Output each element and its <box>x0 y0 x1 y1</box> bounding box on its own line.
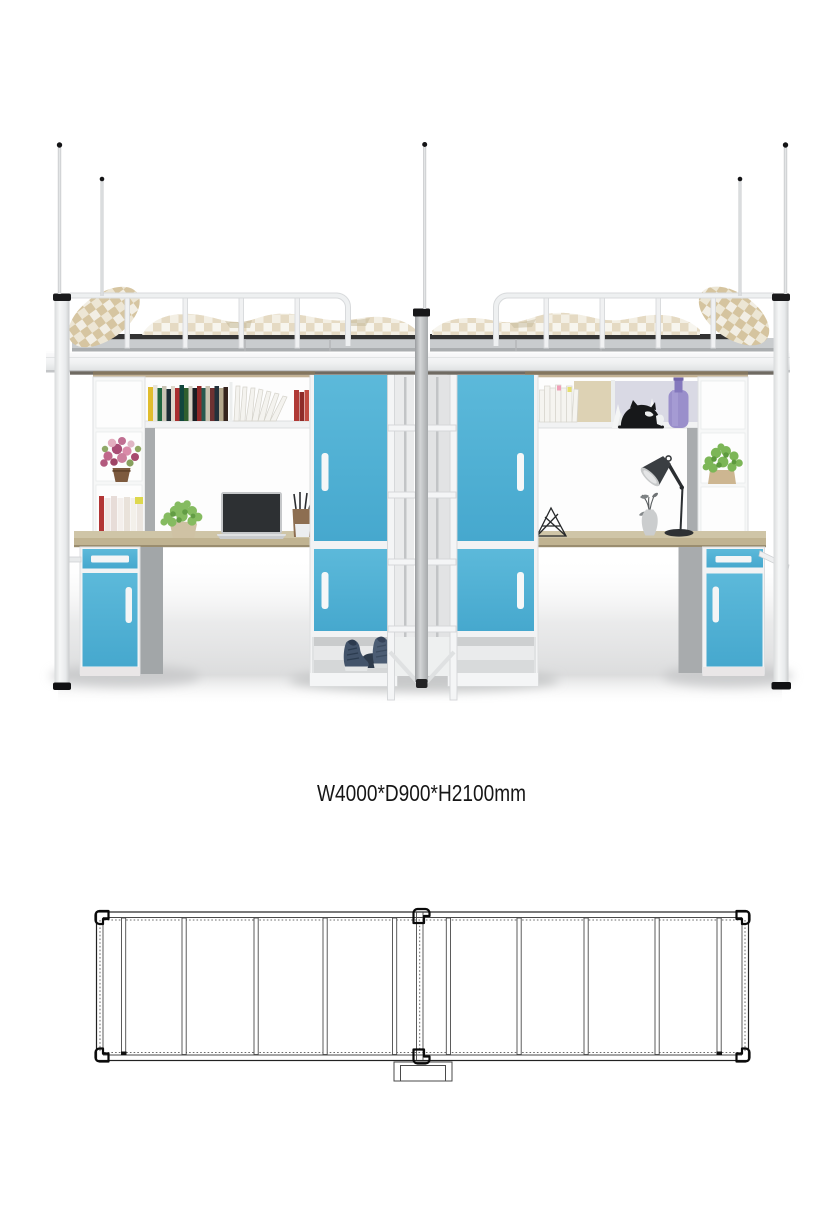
svg-text:W4000*D900*H2100mm: W4000*D900*H2100mm <box>317 780 526 806</box>
